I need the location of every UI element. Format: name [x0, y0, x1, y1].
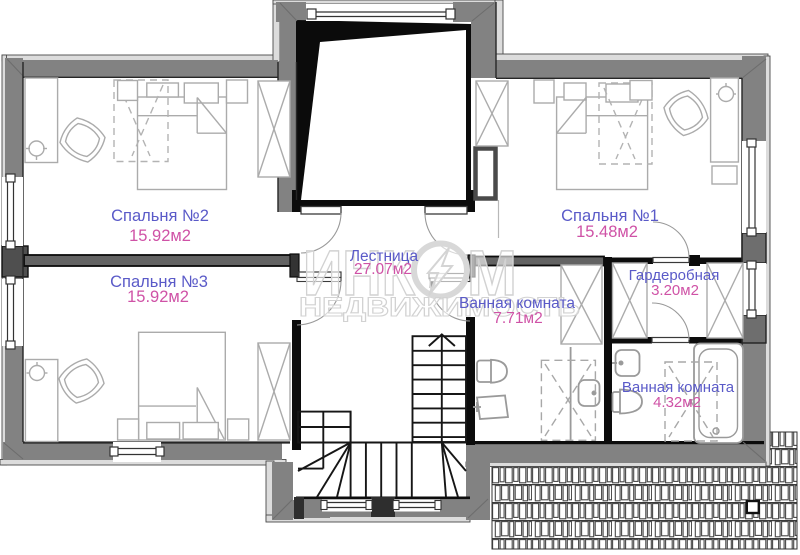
svg-text:3.20м2: 3.20м2: [651, 282, 699, 299]
svg-text:4.32м2: 4.32м2: [653, 394, 701, 411]
svg-text:15.92м2: 15.92м2: [127, 288, 189, 306]
svg-text:15.92м2: 15.92м2: [129, 227, 191, 245]
svg-text:15.48м2: 15.48м2: [576, 223, 638, 241]
svg-text:Спальня №2: Спальня №2: [111, 207, 209, 225]
svg-text:27.07м2: 27.07м2: [354, 261, 412, 278]
svg-text:7.71м2: 7.71м2: [493, 310, 542, 327]
